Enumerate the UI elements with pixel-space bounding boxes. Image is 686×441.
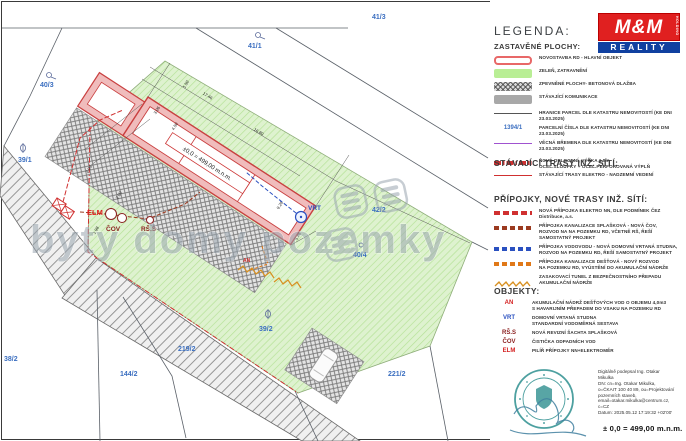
parcel-label: 39/1 [18,157,32,164]
legend-item: AN AKUMULAČNÍ NÁDRŽ DEŠŤOVÝCH VOD O OBJE… [494,300,684,312]
legend-section-objects: OBJEKTY: AN AKUMULAČNÍ NÁDRŽ DEŠŤOVÝCH V… [494,286,684,357]
line-hranice [494,113,532,117]
legend-item: NOVOSTAVBA RD - HLAVNÍ OBJEKT [494,55,684,65]
legend-item: VRT DOMOVNÍ VRTANÁ STUDNASTANDARDNÍ VODO… [494,315,684,327]
legend-item: NOVÁ PŘÍPOJKA ELEKTRO NN, DLE PODMÍNEK Č… [494,208,684,220]
legend-item: ELM PILÍŘ PŘÍPOJKY NN+ELEKTROMĚR [494,348,684,354]
swatch-komunikace [494,95,532,104]
logo-mm: M&M HOLDING [598,13,680,41]
section-heading: PŘÍPOJKY, NOVÉ TRASY INŽ. SÍTÍ: [494,194,684,204]
object-key-elm: ELM [494,348,524,354]
swatch-novostavba [494,56,532,65]
legend-item: STÁVAJÍCÍ KOMUNIKACE [494,94,684,104]
parcel-label: 219/2 [178,346,196,353]
round-stamp [506,364,590,441]
line-splaskova [494,226,532,230]
section-heading: OBJEKTY: [494,286,684,296]
section-heading: ZASTAVĚNÉ PLOCHY: [494,42,684,51]
section-heading: STÁVAJÍCÍ TRASY INŽ. SÍTÍ: [494,158,684,168]
legend-item: RŠ.S NOVÁ REVIZNÍ ŠACHTA SPLAŠKOVÁ [494,330,684,336]
legend-title: LEGENDA: [494,24,571,38]
object-key-an: AN [494,300,524,306]
parcel-label: 41/1 [248,43,262,50]
parcel-label: 38/2 [4,356,18,363]
legend-item: ČOV ČISTIČKA ODPADNÍCH VOD [494,339,684,345]
logo-holding: HOLDING [675,16,679,36]
object-key-cov: ČOV [494,339,524,345]
legend-item: VĚCNÁ BŘEMENA DLE KATASTRU NEMOVITOSTÍ (… [494,140,684,152]
vrt-label: VRT [308,205,321,212]
legend-item: ZELEŇ, ZATRAVNĚNÍ [494,68,684,78]
parcel-label: 144/2 [120,371,138,378]
legend-item: PŘÍPOJKA VODOVODU - NOVÁ DOMOVNÍ VRTANÁ … [494,244,684,256]
parcel-label: 41/3 [372,14,386,21]
legend-section-existing-utilities: STÁVAJÍCÍ TRASY INŽ. SÍTÍ: STÁVAJÍCÍ TRA… [494,158,684,182]
line-elektro-new [494,211,532,215]
stamp-shield [536,385,552,409]
line-zasakovaci-tunel [494,275,532,279]
parcel-label: 221/2 [388,371,406,378]
parcel-label: 40/3 [40,82,54,89]
line-vecna-bremena [494,143,532,147]
elevation-datum: ± 0,0 = 499,00 m.n.m. [603,424,683,433]
legend-item: PŘÍPOJKA KANALIZACE DEŠŤOVÁ - NOVÝ ROZVO… [494,259,684,271]
sample-parcel-number: 1394/1 [494,125,532,129]
swatch-zelen [494,69,532,78]
legend-item: ZASAKOVACÍ TUNEL Z BEZPEČNOSTNÍHO PŘEPAD… [494,274,684,286]
parcel-label: 39/2 [259,326,273,333]
legend-section-new-utilities: PŘÍPOJKY, NOVÉ TRASY INŽ. SÍTÍ: NOVÁ PŘÍ… [494,194,684,289]
elm-label: ELM [87,208,103,217]
object-key-vrt: VRT [494,315,524,321]
legend-section-areas: ZASTAVĚNÉ PLOCHY: NOVOSTAVBA RD - HLAVNÍ… [494,42,684,173]
legend-item: HRANICE PARCEL DLE KATASTRU NEMOVITOSTÍ … [494,110,684,122]
digital-signature-text: Digitálně podepsal Ing. Otakar Mikulka D… [598,369,684,416]
object-key-rss: RŠ.S [494,330,524,336]
line-destova [494,262,532,266]
line-elektro-existing [494,175,532,179]
legend-item: STÁVAJÍCÍ TRASY ELEKTRO - NADZEMNÍ VEDEN… [494,172,684,179]
legend-item: 1394/1 PARCELNÍ ČÍSLA DLE KATASTRU NEMOV… [494,125,684,137]
watermark-text: byty domy pozemky [30,218,446,262]
line-vodovod [494,247,532,251]
site-plan-sheet: ±0,0 = 499,00 m.n.m. [0,0,686,441]
legend-item: ZPEVNĚNÉ PLOCHY- BETONOVÁ DLAŽBA [494,81,684,91]
legend-item: PŘÍPOJKA KANALIZACE SPLAŠKOVÁ - NOVÁ ČOV… [494,223,684,241]
swatch-dlazba [494,82,532,91]
